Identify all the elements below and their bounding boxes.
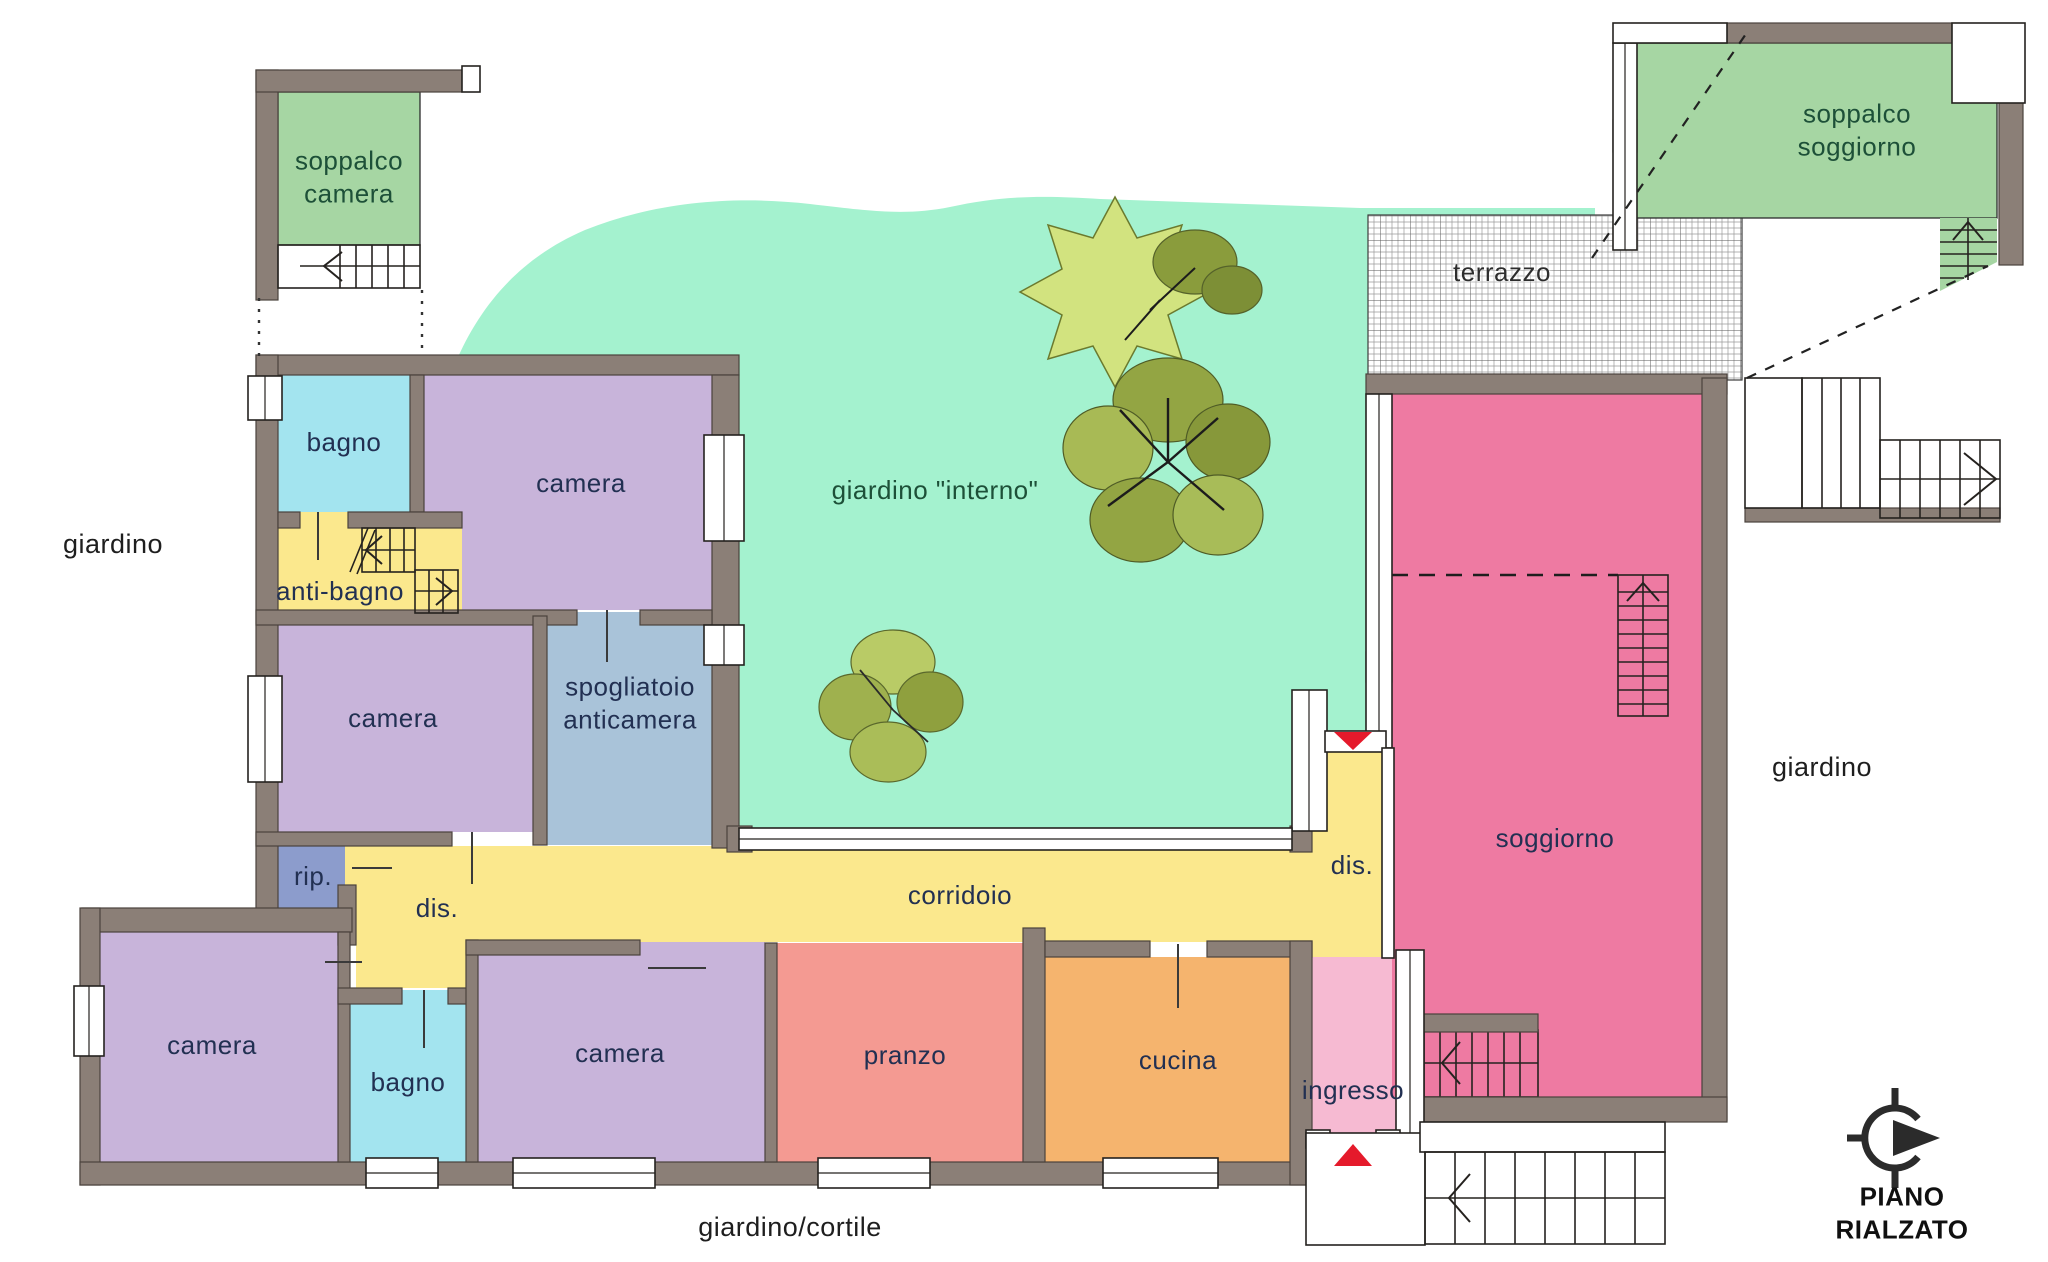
room-soggiorno xyxy=(1392,394,1702,1097)
label-camera-sud-ovest: camera xyxy=(167,1029,257,1062)
room-ingresso xyxy=(1312,957,1398,1133)
soppalco-soggiorno-stairs xyxy=(1940,218,1997,291)
terrace-area xyxy=(1368,215,1742,380)
label-spogliatoio: spogliatoio anticamera xyxy=(563,671,697,736)
label-ripostiglio: rip. xyxy=(294,860,332,893)
label-dis-est: dis. xyxy=(1331,849,1373,882)
entrance-stairs-south xyxy=(1425,1152,1665,1244)
label-camera-ovest: camera xyxy=(348,702,438,735)
label-giardino-interno: giardino "interno" xyxy=(832,474,1039,507)
floor-title: PIANO RIALZATO xyxy=(1829,1181,1975,1246)
label-soppalco-soggiorno: soppalco soggiorno xyxy=(1798,98,1917,163)
label-camera-sud: camera xyxy=(575,1037,665,1070)
label-camera-nord: camera xyxy=(536,467,626,500)
label-ingresso: ingresso xyxy=(1302,1074,1404,1107)
label-giardino-cortile: giardino/cortile xyxy=(698,1211,882,1245)
label-soppalco-camera: soppalco camera xyxy=(295,145,403,210)
label-giardino-left: giardino xyxy=(63,528,163,562)
label-giardino-right: giardino xyxy=(1772,751,1872,785)
label-corridoio: corridoio xyxy=(908,879,1012,912)
soppalco-camera-stairs xyxy=(278,245,420,288)
north-compass-icon xyxy=(1847,1088,1940,1188)
label-cucina: cucina xyxy=(1139,1044,1217,1077)
label-anti-bagno: anti-bagno xyxy=(276,575,404,608)
label-pranzo: pranzo xyxy=(864,1039,947,1072)
label-soggiorno: soggiorno xyxy=(1496,822,1615,855)
label-bagno-sud: bagno xyxy=(371,1066,446,1099)
label-dis-ovest: dis. xyxy=(416,892,458,925)
label-bagno-nord: bagno xyxy=(307,426,382,459)
label-terrazzo: terrazzo xyxy=(1453,256,1551,289)
garden-stairs-east xyxy=(1802,378,2000,518)
